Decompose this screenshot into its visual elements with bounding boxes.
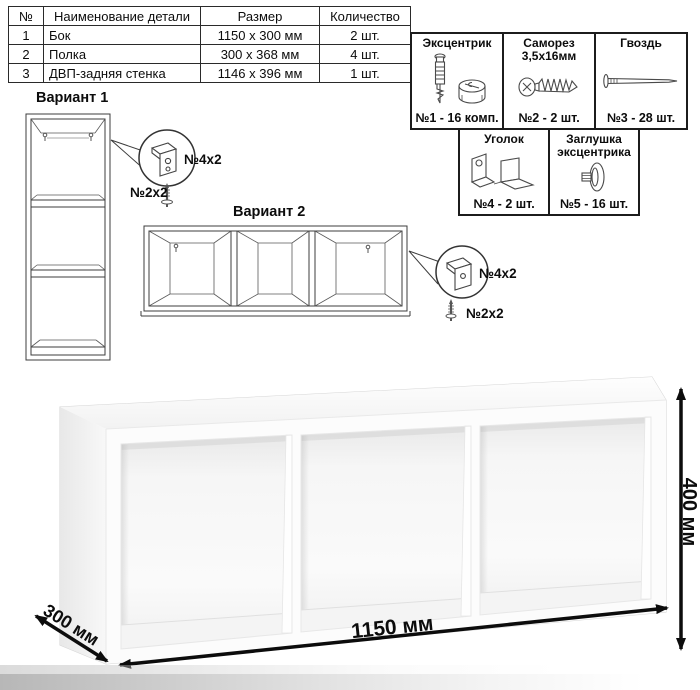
variant2-wireframe: №4х2 №2х2	[141, 226, 517, 321]
variant1-wireframe: №4х2 №2х2	[26, 114, 222, 360]
shelf-compartment	[121, 435, 292, 649]
floor-shadow-fade	[0, 665, 700, 674]
screw-count-label: №2х2	[466, 306, 504, 321]
assembly-drawings: №4х2 №2х2	[0, 0, 700, 690]
height-dimension-label: 400 мм	[678, 478, 700, 547]
shelf-compartment	[301, 426, 471, 632]
shelf-compartment	[480, 417, 651, 615]
eccentric-mark	[43, 133, 93, 141]
screw-count-label: №2х2	[130, 185, 168, 200]
bracket-count-label: №4х2	[479, 266, 517, 281]
eccentric-mark	[174, 244, 370, 253]
screw-icon	[446, 299, 456, 321]
floor-shadow	[0, 674, 700, 690]
assembly-instruction-sheet: № Наименование детали Размер Количество …	[0, 0, 700, 690]
bracket-count-label: №4х2	[184, 152, 222, 167]
callout-leader	[409, 251, 440, 284]
